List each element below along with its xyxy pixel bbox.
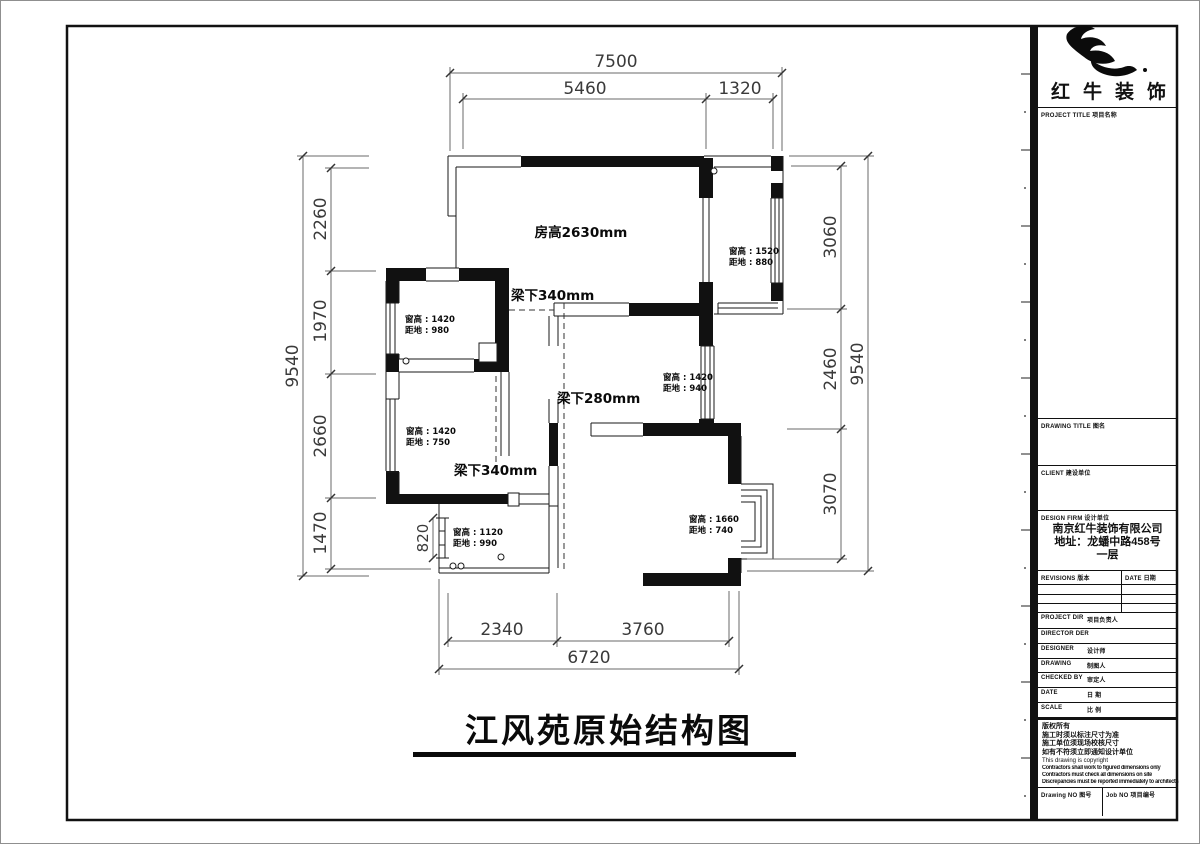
dimension-texts: 7500 5460 1320 9540 2260 1970 2660 1470 …: [283, 52, 868, 668]
dim-bottom-1: 2340: [480, 620, 523, 640]
project-title-label-zh: 项目名称: [1092, 113, 1117, 119]
design-firm-section: DESIGN FIRM 设计单位 南京红牛装饰有限公司 地址：龙蟠中路458号一…: [1038, 511, 1177, 571]
titleblock-divider-bar: [1030, 26, 1038, 820]
dim-top-total: 7500: [594, 52, 637, 72]
client-label: CLIENT 建设单位: [1041, 468, 1091, 477]
client-label-en: CLIENT: [1041, 471, 1064, 477]
window-tag-bedroom-s: 距地 : 740: [689, 525, 733, 536]
window-tag-kitchen-h: 窗高 : 1120: [453, 527, 503, 538]
dim-bottom-total: 6720: [567, 648, 610, 668]
window-tag-bedroom-h: 窗高 : 1660: [689, 514, 739, 525]
beam-label-bottom: 梁下340mm: [453, 462, 537, 479]
dim-bottom-2: 3760: [621, 620, 664, 640]
dim-left-4: 1470: [311, 511, 331, 554]
row-project-dir: PROJECT DIR 项目负责人: [1038, 613, 1177, 629]
beam-label-middle: 梁下280mm: [556, 390, 640, 407]
window-tag-room-ll-h: 窗高 : 1420: [406, 426, 456, 437]
row-date: DATE 日 期: [1038, 688, 1177, 703]
design-firm-name: 南京红牛装饰有限公司: [1050, 523, 1165, 536]
revisions-label: REVISIONS 版本: [1041, 573, 1090, 582]
room-height-label: 房高2630mm: [535, 224, 628, 241]
window-tag-room-tl-h: 窗高 : 1420: [405, 314, 455, 325]
dim-left-total: 9540: [283, 344, 303, 387]
drawing-title-section: DRAWING TITLE 图名: [1038, 419, 1177, 466]
client-section: CLIENT 建设单位: [1038, 466, 1177, 511]
floor-plan-wall-lines: [386, 156, 783, 573]
dim-right-2: 2460: [821, 347, 841, 390]
project-title-section: PROJECT TITLE 项目名称: [1038, 108, 1177, 419]
dim-left-1: 2260: [311, 197, 331, 240]
row-scale: SCALE 比 例: [1038, 703, 1177, 718]
revisions-column-divider: [1121, 571, 1122, 612]
dim-right-1: 3060: [821, 215, 841, 258]
cad-sheet: 7500 5460 1320 9540 2260 1970 2660 1470 …: [0, 0, 1200, 844]
dim-kitchen-window: 820: [414, 524, 432, 553]
dim-top-1: 5460: [563, 79, 606, 99]
number-section: Drawing NO 图号 Job NO 项目编号: [1038, 788, 1177, 816]
row-checked-by: CHECKED BY 审定人: [1038, 673, 1177, 688]
window-tag-room-ll-s: 距地 : 750: [406, 437, 450, 448]
window-tag-kitchen-s: 距地 : 990: [453, 538, 497, 549]
floor-plan-drawing: 7500 5460 1320 9540 2260 1970 2660 1470 …: [1, 1, 1200, 844]
row-drawing: DRAWING 制图人: [1038, 659, 1177, 673]
dim-left-2: 1970: [311, 299, 331, 342]
window-tag-balcony-s: 距地 : 880: [729, 257, 773, 268]
window-tag-balcony-h: 窗高 : 1520: [729, 246, 779, 257]
project-title-label: PROJECT TITLE 项目名称: [1041, 110, 1117, 119]
dim-top-2: 1320: [718, 79, 761, 99]
window-tag-room-mid-h: 窗高 : 1420: [663, 372, 713, 383]
drawing-title-label-zh: 图名: [1093, 424, 1105, 430]
dim-right-3: 3070: [821, 472, 841, 515]
title-block: 红牛装饰 PROJECT TITLE 项目名称 DRAWING TITLE 图名…: [1038, 26, 1177, 820]
sheet-title-underline: [413, 752, 796, 757]
revisions-table: REVISIONS 版本 DATE 日期: [1038, 571, 1177, 613]
revisions-date-label: DATE 日期: [1125, 573, 1156, 582]
copyright-notes: 版权所有 施工时须以标注尺寸为准 施工单位须现场校核尺寸 如有不符须立即通知设计…: [1038, 718, 1177, 788]
drawing-no-cell: Drawing NO 图号: [1038, 788, 1103, 816]
window-tag-room-tl-s: 距地 : 980: [405, 325, 449, 336]
dim-left-3: 2660: [311, 414, 331, 457]
dim-right-total: 9540: [848, 342, 868, 385]
sheet-edge-ticks: [1021, 74, 1030, 797]
job-no-cell: Job NO 项目编号: [1103, 788, 1158, 816]
design-firm-label: DESIGN FIRM 设计单位: [1041, 513, 1109, 522]
window-tag-room-mid-s: 距地 : 940: [663, 383, 707, 394]
client-label-zh: 建设单位: [1066, 471, 1091, 477]
design-firm-address: 地址：龙蟠中路458号一层: [1050, 536, 1165, 562]
design-firm-label-zh: 设计单位: [1084, 516, 1109, 522]
drawing-title-label: DRAWING TITLE 图名: [1041, 421, 1105, 430]
row-designer: DESIGNER 设计师: [1038, 644, 1177, 659]
sheet-title: 江风苑原始结构图: [465, 711, 753, 750]
project-title-label-en: PROJECT TITLE: [1041, 113, 1090, 119]
design-firm-label-en: DESIGN FIRM: [1041, 516, 1083, 522]
brand-name: 红牛装饰: [1038, 80, 1177, 108]
beam-label-top: 梁下340mm: [510, 287, 594, 304]
sheet-title-group: 江风苑原始结构图: [413, 711, 796, 757]
row-director: DIRECTOR DER: [1038, 629, 1177, 644]
drawing-title-label-en: DRAWING TITLE: [1041, 424, 1091, 430]
